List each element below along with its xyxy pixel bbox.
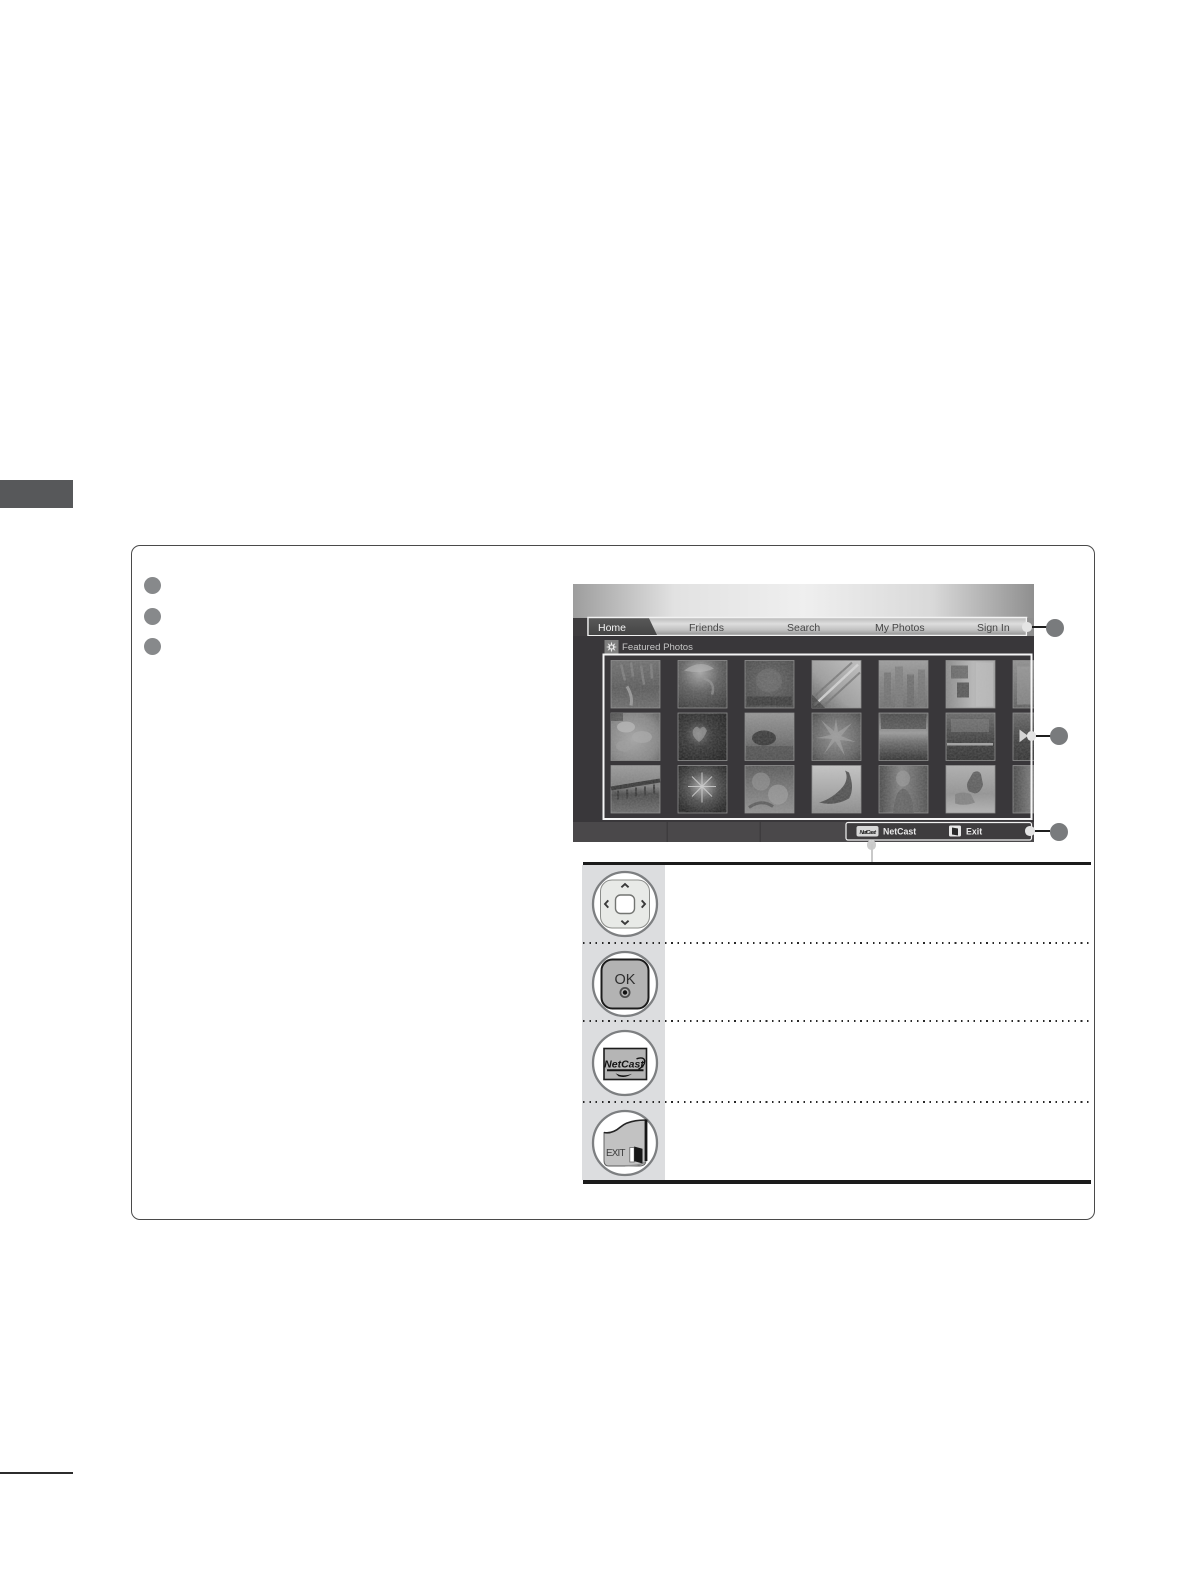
- svg-text:NetCast: NetCast: [883, 827, 916, 837]
- svg-text:NetCast: NetCast: [860, 830, 878, 836]
- svg-text:Featured Photos: Featured Photos: [622, 642, 693, 653]
- svg-text:Friends: Friends: [689, 622, 724, 634]
- svg-text:Home: Home: [598, 622, 626, 634]
- svg-text:EXIT: EXIT: [606, 1148, 626, 1159]
- svg-text:OK: OK: [615, 972, 636, 988]
- svg-text:Search: Search: [787, 622, 820, 634]
- svg-text:Exit: Exit: [966, 827, 982, 837]
- svg-text:Sign In: Sign In: [977, 622, 1010, 634]
- svg-text:My Photos: My Photos: [875, 622, 925, 634]
